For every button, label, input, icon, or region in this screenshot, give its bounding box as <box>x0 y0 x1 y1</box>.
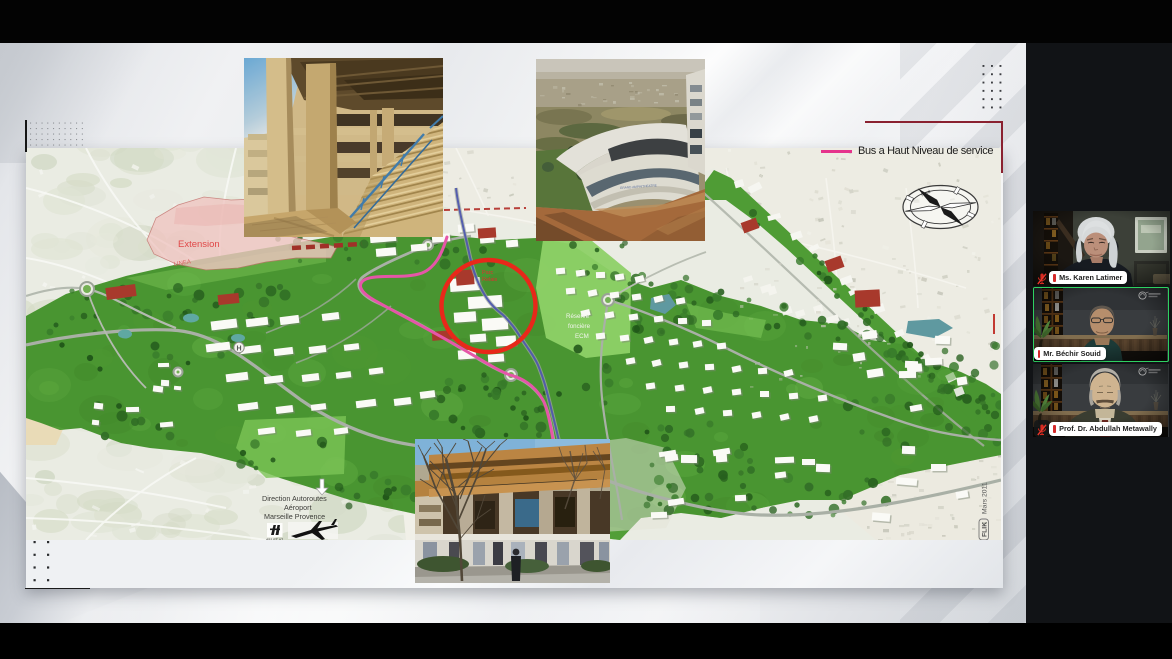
svg-text:Direction Autoroutes: Direction Autoroutes <box>262 494 327 503</box>
svg-text:Extension: Extension <box>178 239 220 250</box>
svg-text:Réserve: Réserve <box>566 313 590 320</box>
svg-text:Aéroport: Aéroport <box>284 503 312 512</box>
svg-text:Mars 2011: Mars 2011 <box>981 482 988 514</box>
svg-text:foncière: foncière <box>568 323 591 330</box>
svg-text:Parc: Parc <box>482 270 494 276</box>
svg-text:FLIK: FLIK <box>981 522 988 537</box>
svg-text:A51 ET A7: A51 ET A7 <box>266 538 283 540</box>
svg-text:ECM: ECM <box>575 333 589 340</box>
svg-text:H: H <box>236 345 241 352</box>
svg-text:Marseille Provence: Marseille Provence <box>264 512 325 521</box>
svg-text:Relais: Relais <box>482 277 498 283</box>
